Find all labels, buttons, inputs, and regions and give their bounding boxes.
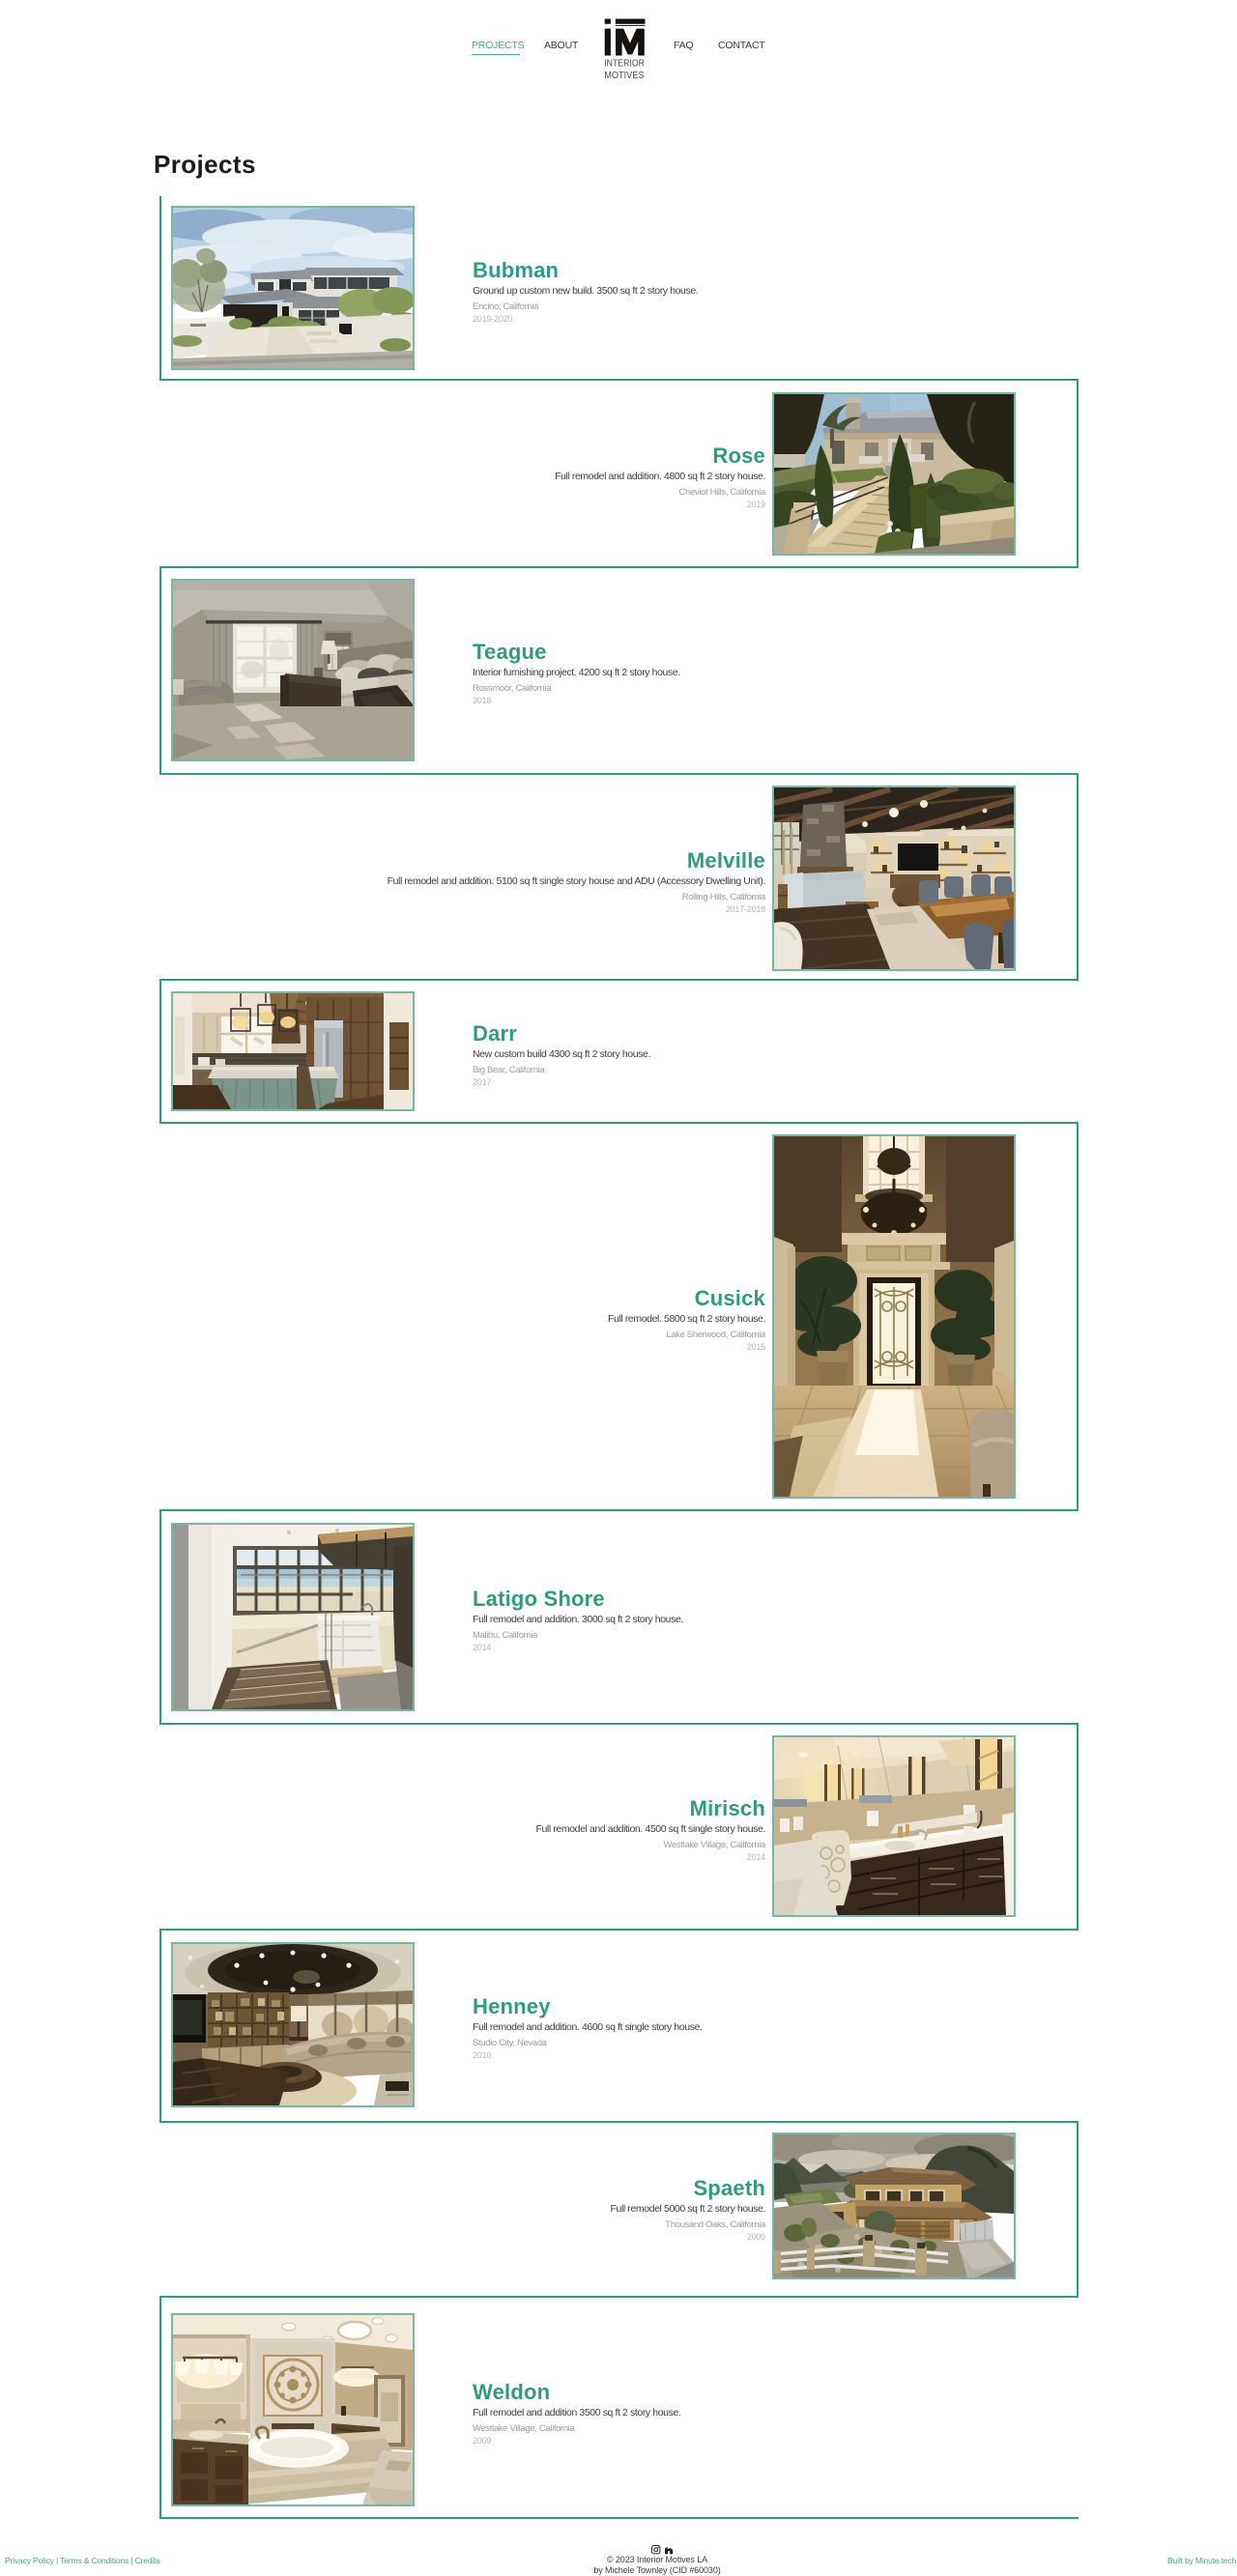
svg-text:INTERIOR: INTERIOR [604, 58, 645, 70]
svg-text:MOTIVES: MOTIVES [604, 70, 644, 81]
